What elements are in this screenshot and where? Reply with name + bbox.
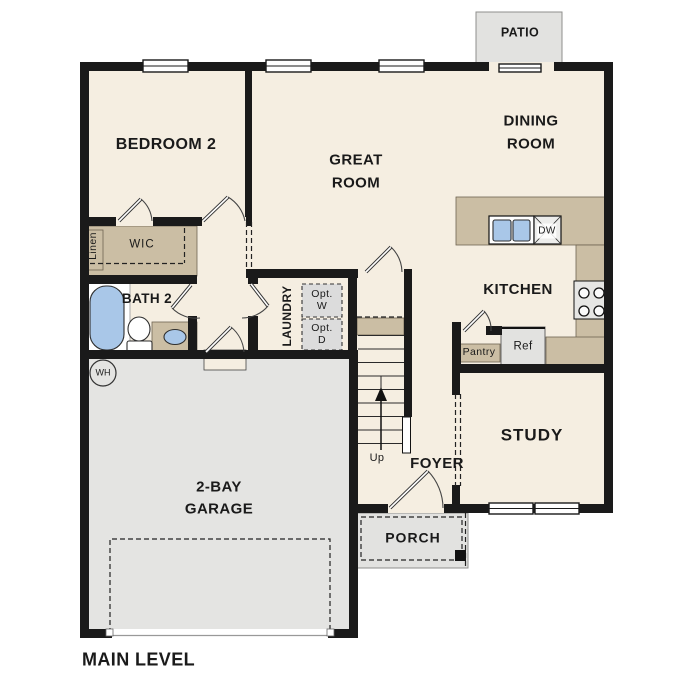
kitchen-counter-bottom [546,337,606,365]
stove-icon [574,281,607,319]
room-label-bath2: BATH 2 [122,289,172,309]
fixture-label-pantry: Pantry [463,345,496,361]
porch-post [455,550,466,561]
room-label-linen: Linen [86,232,102,260]
toilet-icon [127,317,152,352]
fixture-label-opt-washer: Opt. W [311,288,332,312]
floorplan-canvas: BEDROOM 2 GREAT ROOM DINING ROOM KITCHEN… [0,0,687,687]
room-label-patio: PATIO [501,24,539,43]
room-label-great-room: GREAT ROOM [329,150,382,195]
room-label-garage: 2-BAY GARAGE [185,476,253,520]
plan-title: MAIN LEVEL [82,647,195,674]
fixture-label-ref: Ref [513,338,532,355]
room-label-foyer: FOYER [410,453,464,476]
room-label-laundry: LAUNDRY [278,285,296,346]
stair-railing [403,417,411,453]
floorplan-drawing [0,0,687,687]
bathroom-sink-icon [164,330,186,345]
fixture-label-water-heater: WH [96,366,111,380]
room-label-bedroom2: BEDROOM 2 [116,133,217,157]
room-label-study: STUDY [501,422,564,448]
fixture-label-dw: DW [537,224,556,239]
fixture-label-up: Up [370,450,385,467]
fixture-label-opt-dryer: Opt. D [311,322,332,346]
room-label-wic: WIC [129,236,154,253]
kitchen-sink-icon [489,216,534,244]
stair-landing [357,318,404,335]
room-label-dining-room: DINING ROOM [504,111,559,156]
room-label-porch: PORCH [385,528,441,549]
room-label-kitchen: KITCHEN [483,279,552,302]
